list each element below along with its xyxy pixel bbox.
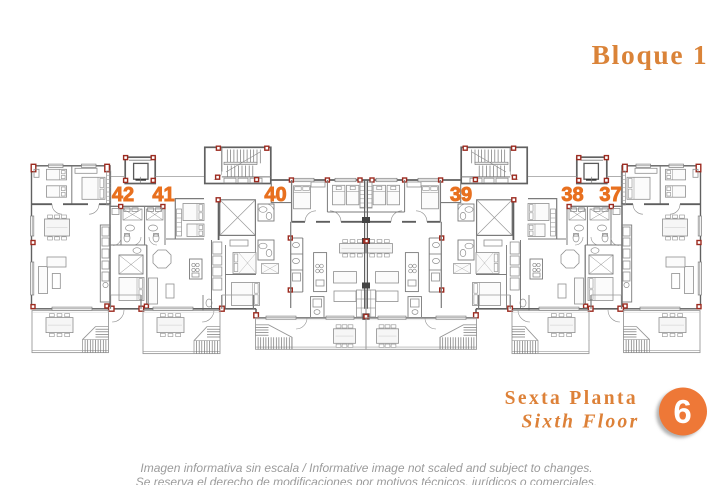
- svg-text:37: 37: [599, 184, 621, 206]
- svg-text:38: 38: [561, 184, 583, 206]
- svg-text:42: 42: [112, 184, 134, 206]
- svg-text:Bloque 1: Bloque 1: [592, 39, 709, 70]
- svg-text:6: 6: [673, 393, 691, 430]
- svg-text:Imagen informativa sin escala: Imagen informativa sin escala / Informat…: [140, 461, 592, 475]
- svg-text:Se reserva el derecho de modif: Se reserva el derecho de modificaciones …: [136, 475, 598, 485]
- svg-text:41: 41: [152, 184, 174, 206]
- svg-text:39: 39: [450, 184, 472, 206]
- svg-text:Sixth Floor: Sixth Floor: [522, 412, 640, 433]
- svg-text:40: 40: [264, 184, 286, 206]
- svg-text:Sexta Planta: Sexta Planta: [505, 388, 638, 409]
